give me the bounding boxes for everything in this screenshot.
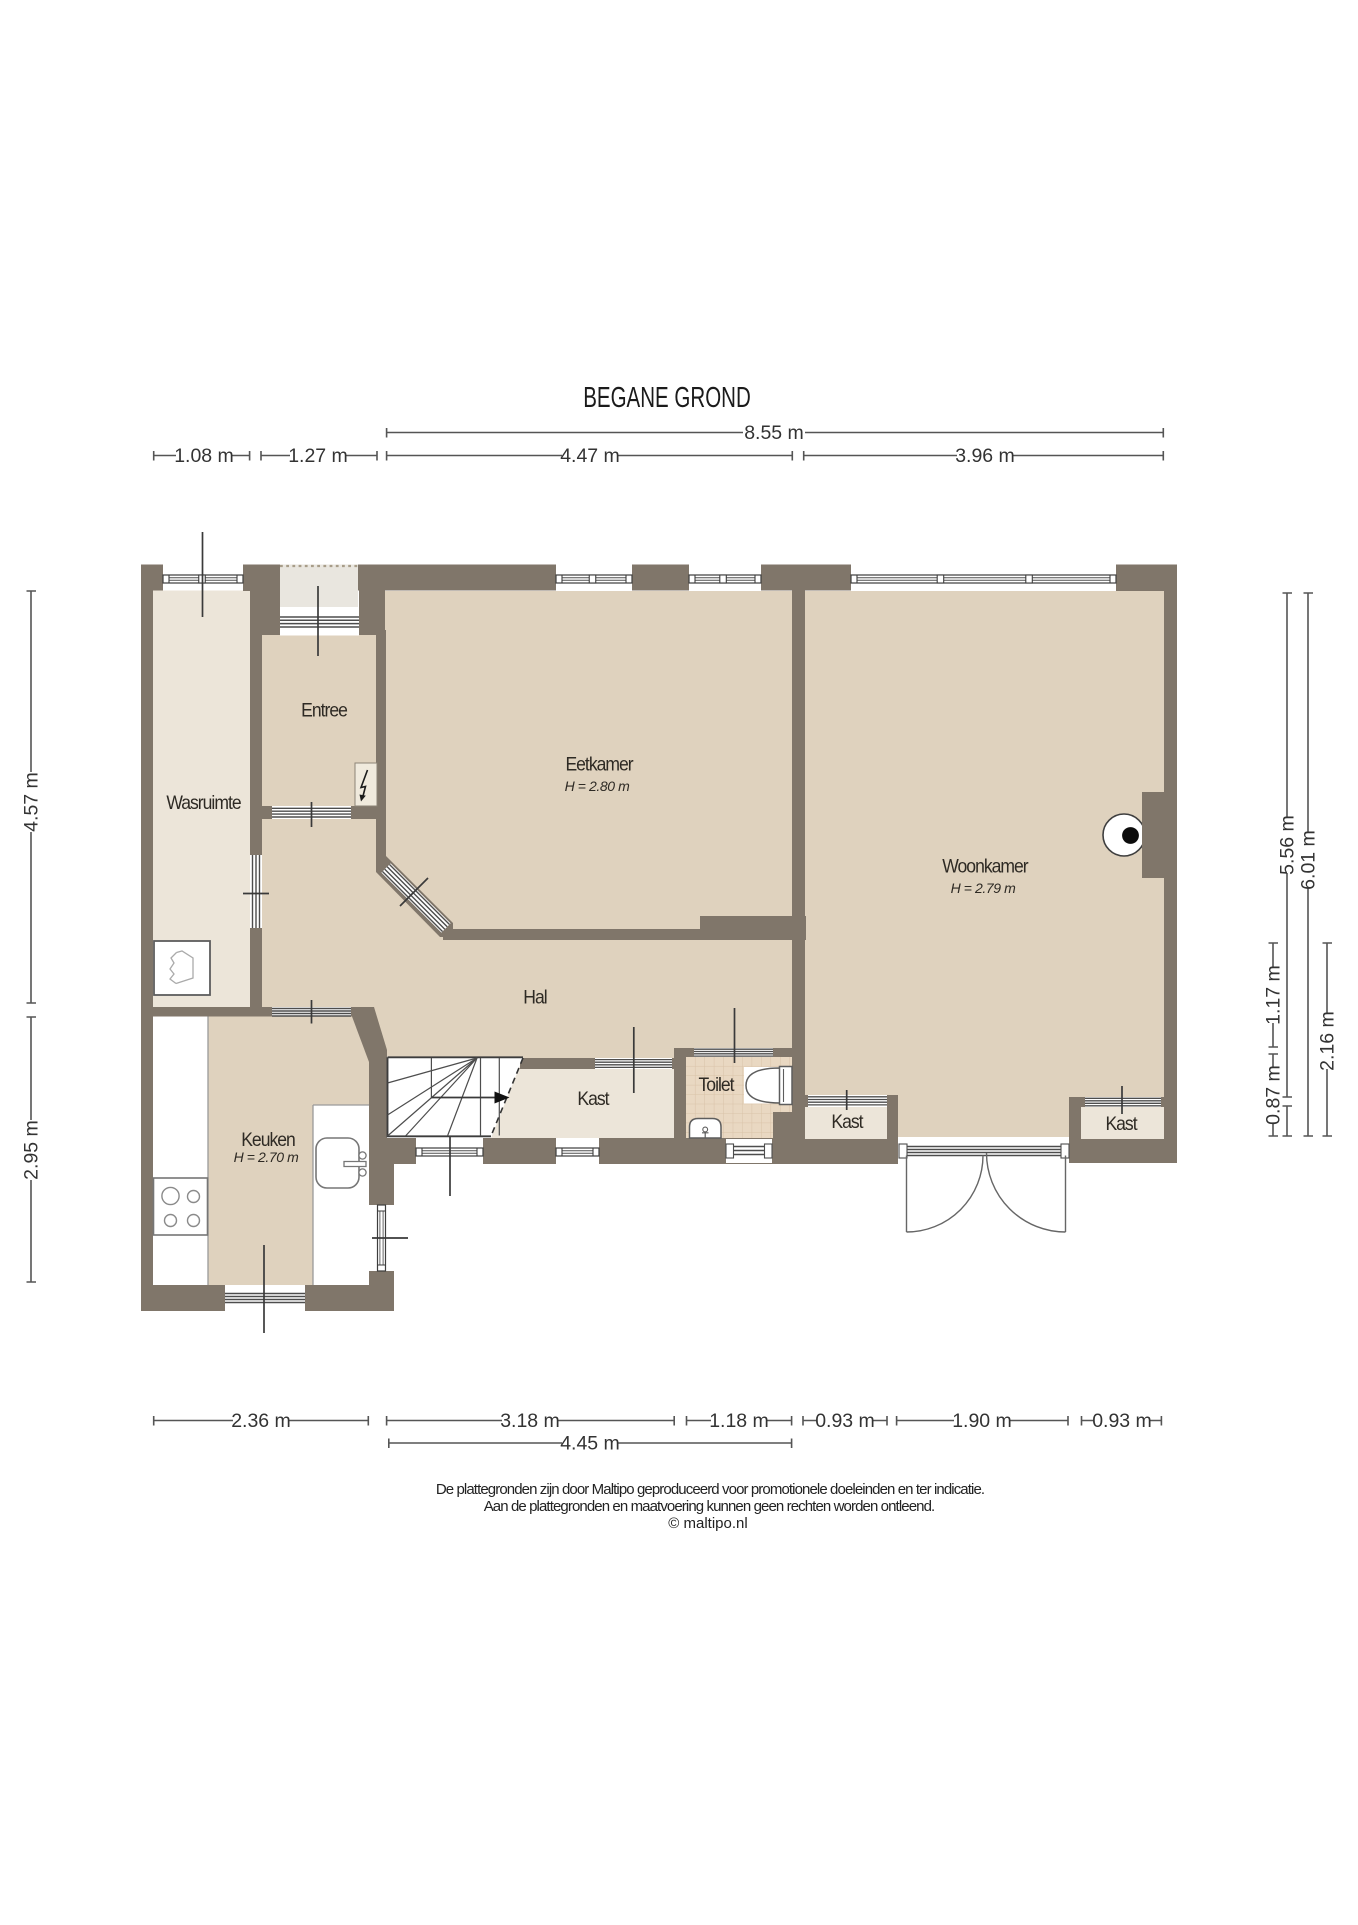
svg-text:© maltipo.nl: © maltipo.nl bbox=[668, 1515, 747, 1532]
svg-text:6.01 m: 6.01 m bbox=[1298, 830, 1320, 890]
svg-text:BEGANE GROND: BEGANE GROND bbox=[583, 383, 751, 414]
svg-text:Eetkamer: Eetkamer bbox=[565, 753, 633, 775]
svg-text:0.93 m: 0.93 m bbox=[815, 1410, 875, 1432]
svg-text:Keuken: Keuken bbox=[241, 1128, 295, 1150]
svg-text:Toilet: Toilet bbox=[699, 1073, 736, 1095]
svg-text:1.18 m: 1.18 m bbox=[709, 1410, 769, 1432]
svg-text:1.27 m: 1.27 m bbox=[288, 445, 348, 467]
svg-text:1.08 m: 1.08 m bbox=[174, 445, 234, 467]
svg-text:2.36 m: 2.36 m bbox=[231, 1410, 291, 1432]
svg-text:8.55 m: 8.55 m bbox=[744, 422, 804, 444]
svg-text:H = 2.79 m: H = 2.79 m bbox=[951, 880, 1017, 896]
svg-text:4.45 m: 4.45 m bbox=[560, 1433, 620, 1455]
svg-text:2.16 m: 2.16 m bbox=[1317, 1011, 1339, 1071]
svg-text:Entree: Entree bbox=[301, 699, 347, 721]
svg-text:2.95 m: 2.95 m bbox=[21, 1120, 43, 1180]
svg-text:Kast: Kast bbox=[1105, 1112, 1138, 1134]
svg-text:H = 2.70 m: H = 2.70 m bbox=[234, 1149, 300, 1165]
svg-text:4.57 m: 4.57 m bbox=[21, 772, 43, 832]
svg-text:3.96 m: 3.96 m bbox=[955, 445, 1015, 467]
svg-text:Woonkamer: Woonkamer bbox=[942, 855, 1028, 877]
svg-text:Kast: Kast bbox=[577, 1087, 610, 1109]
svg-text:0.93 m: 0.93 m bbox=[1092, 1410, 1152, 1432]
svg-text:1.17 m: 1.17 m bbox=[1263, 965, 1285, 1025]
svg-text:Kast: Kast bbox=[831, 1110, 864, 1132]
svg-text:Hal: Hal bbox=[523, 986, 546, 1008]
svg-text:Aan de plattegronden en maatvo: Aan de plattegronden en maatvoering kunn… bbox=[484, 1498, 935, 1515]
svg-text:0.87 m: 0.87 m bbox=[1263, 1065, 1285, 1125]
svg-text:Wasruimte: Wasruimte bbox=[166, 791, 241, 813]
svg-text:De plattegronden zijn door Mal: De plattegronden zijn door Maltipo gepro… bbox=[436, 1481, 984, 1498]
svg-text:H = 2.80 m: H = 2.80 m bbox=[565, 778, 631, 794]
svg-text:1.90 m: 1.90 m bbox=[952, 1410, 1012, 1432]
svg-text:4.47 m: 4.47 m bbox=[560, 445, 620, 467]
svg-text:3.18 m: 3.18 m bbox=[500, 1410, 560, 1432]
svg-text:5.56 m: 5.56 m bbox=[1277, 815, 1299, 875]
